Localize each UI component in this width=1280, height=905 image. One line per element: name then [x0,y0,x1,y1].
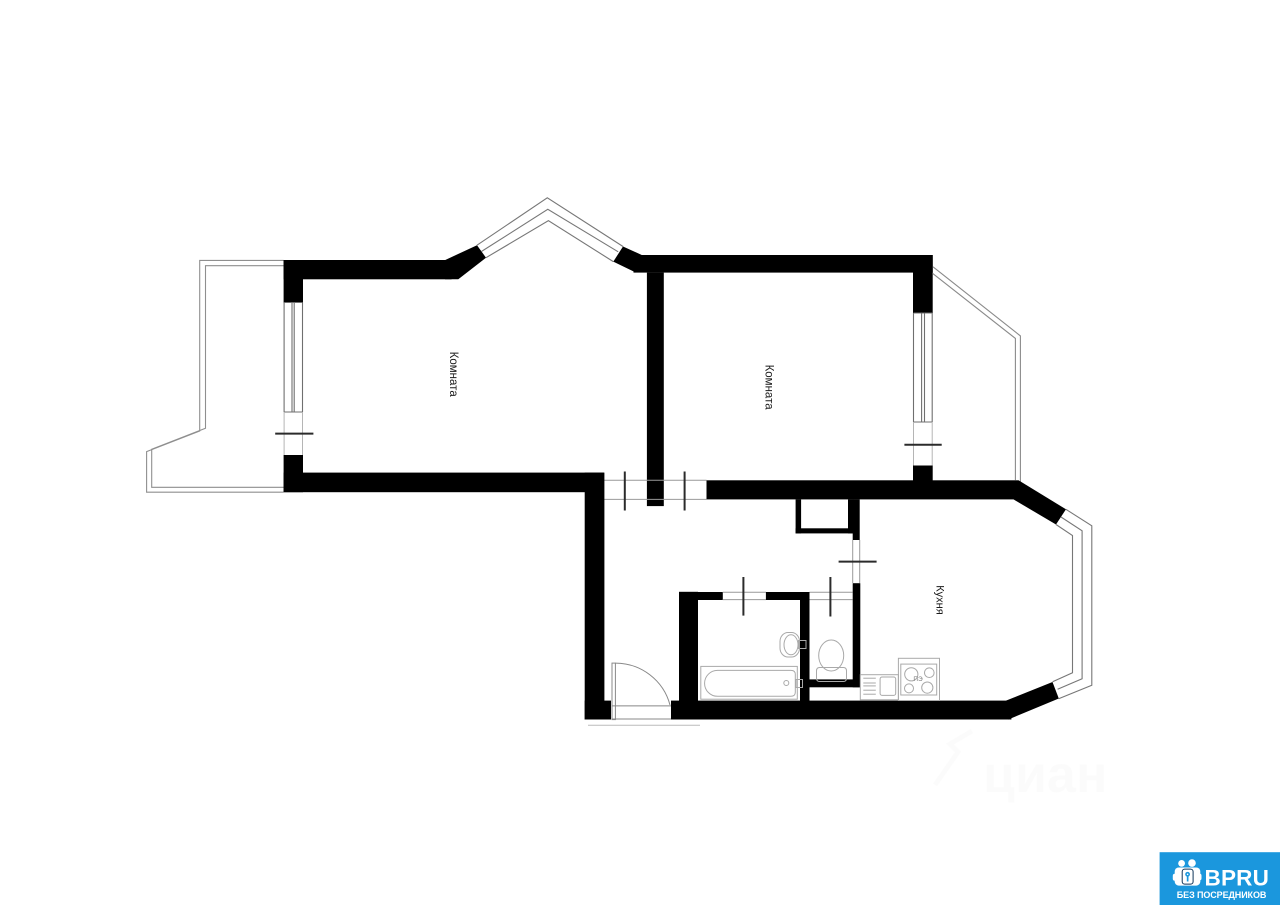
svg-text:ПЭ: ПЭ [913,676,923,683]
svg-text:Кухня: Кухня [933,585,945,614]
svg-text:BPRU: BPRU [1205,866,1270,891]
svg-text:Комната: Комната [762,365,774,411]
svg-text:циан: циан [983,746,1107,804]
svg-text:Комната: Комната [447,352,459,398]
svg-text:БЕЗ ПОСРЕДНИКОВ: БЕЗ ПОСРЕДНИКОВ [1177,890,1267,900]
